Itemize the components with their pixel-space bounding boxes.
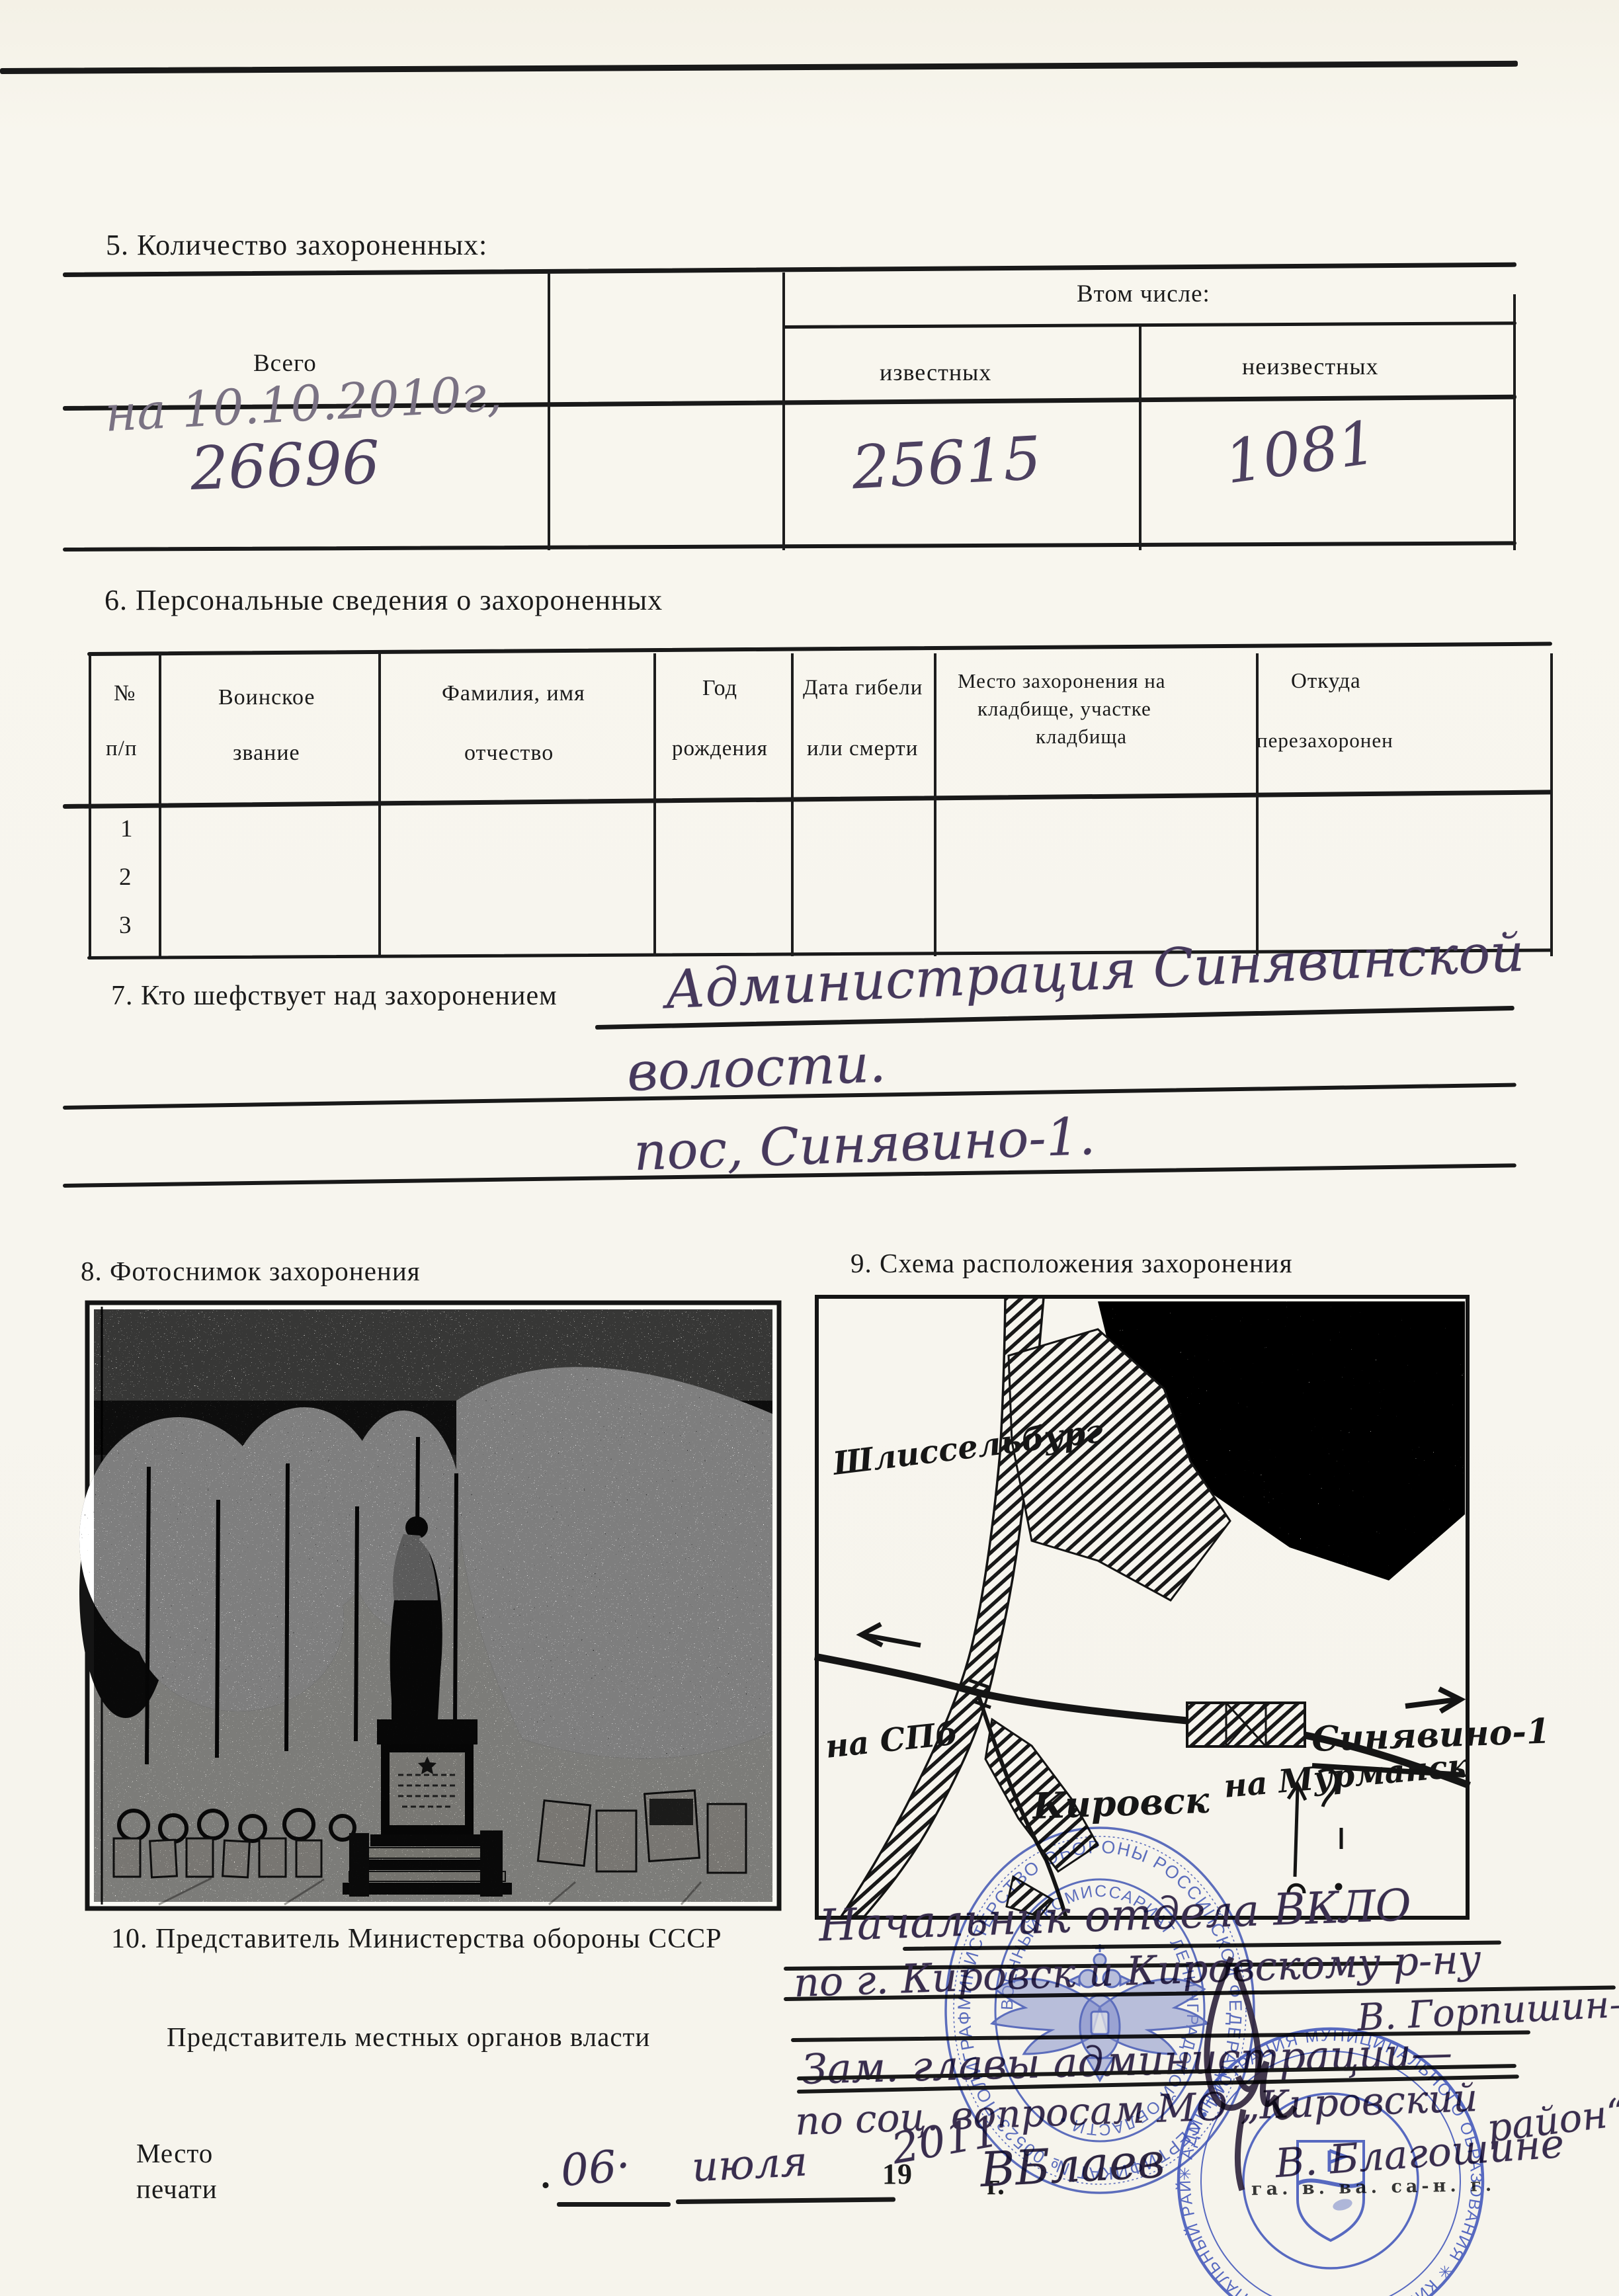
administration-stamp: ✳ АДМИНИСТРАЦИЯ МУНИЦИПАЛЬНОГО ОБРАЗОВАН… bbox=[0, 0, 1485, 2296]
stamp-outer-ring-text: МИНИСТЕРСТВО ОБОРОНЫ РОССИЙСКОЙ ФЕДЕРАЦИ… bbox=[0, 0, 1245, 2184]
svg-text:МИНИСТЕРСТВО ОБОРОНЫ РОССИЙСКО: МИНИСТЕРСТВО ОБОРОНЫ РОССИЙСКОЙ ФЕДЕРАЦИ… bbox=[0, 0, 1245, 2184]
admin-stamp-ring-text: ✳ АДМИНИСТРАЦИЯ МУНИЦИПАЛЬНОГО ОБРАЗОВАН… bbox=[0, 0, 1485, 2296]
kirovsk-coat-of-arms-icon bbox=[1298, 2141, 1364, 2240]
military-commissariat-stamp: МИНИСТЕРСТВО ОБОРОНЫ РОССИЙСКОЙ ФЕДЕРАЦИ… bbox=[0, 0, 1254, 2193]
svg-text:✳ АДМИНИСТРАЦИЯ МУНИЦИПАЛЬНОГО: ✳ АДМИНИСТРАЦИЯ МУНИЦИПАЛЬНОГО ОБРАЗОВАН… bbox=[0, 0, 1485, 2296]
stamps-overlay: МИНИСТЕРСТВО ОБОРОНЫ РОССИЙСКОЙ ФЕДЕРАЦИ… bbox=[0, 0, 1619, 2296]
scanned-burial-passport-page: 5. Количество захороненных: Всего Втом ч… bbox=[0, 0, 1619, 2296]
